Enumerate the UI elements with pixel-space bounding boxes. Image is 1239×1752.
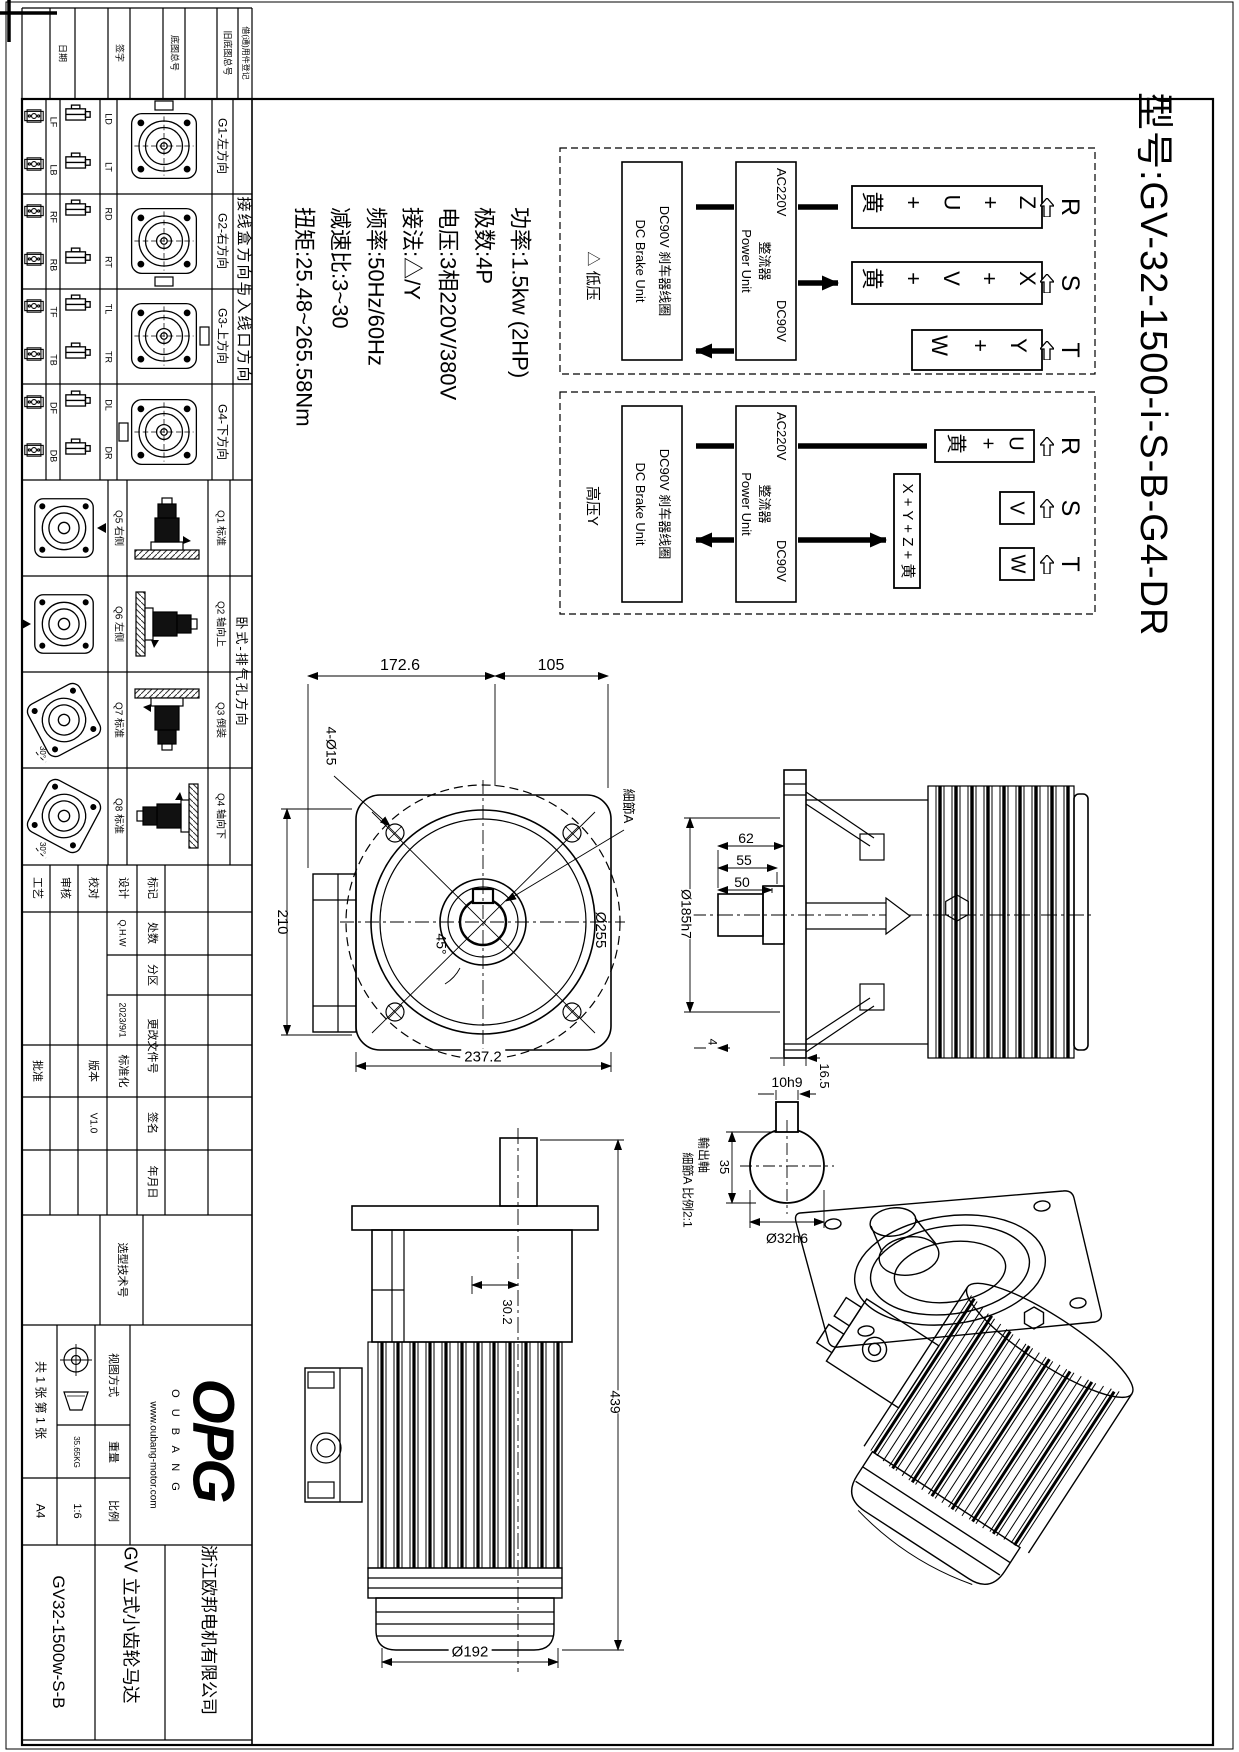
tb-rev-ymd: 年月日 bbox=[145, 1166, 157, 1199]
dim-55: 55 bbox=[736, 852, 752, 868]
q4-label: Q4 轴向下 bbox=[214, 793, 225, 839]
power-unit-cn-2: 整流器 bbox=[757, 484, 771, 523]
g1-a2: LB bbox=[48, 164, 57, 175]
vertical-view bbox=[305, 1128, 598, 1672]
g4-a1: DF bbox=[48, 402, 57, 414]
q3-label: Q3 倒装 bbox=[214, 702, 225, 738]
tb-rev-count: 处数 bbox=[145, 922, 157, 944]
tb-scale-label: 比例 bbox=[106, 1500, 118, 1522]
g2-a1: RF bbox=[48, 211, 57, 223]
g2-pos: G2-右方向 bbox=[216, 213, 229, 269]
g1-b1: LD bbox=[103, 113, 112, 125]
dim-35: 35 bbox=[717, 1160, 731, 1174]
tb-selection: 选型技术号 bbox=[115, 1243, 127, 1298]
g3-b1: TL bbox=[103, 304, 112, 315]
input-high-t: T bbox=[1057, 556, 1083, 571]
spec-poles: 极数:4P bbox=[472, 207, 495, 284]
q7-angle: 30° bbox=[38, 746, 46, 758]
q5-label: Q5 右侧 bbox=[112, 510, 123, 546]
g2-a2: RB bbox=[48, 259, 57, 272]
q7-label: Q7 标准 bbox=[112, 702, 123, 738]
tb-size: A4 bbox=[34, 1504, 47, 1519]
tb-rev-sign: 签名 bbox=[145, 1112, 157, 1134]
shaft-detail-view bbox=[726, 1090, 834, 1228]
margin-field-master: 底图总号 bbox=[169, 35, 178, 71]
high-voltage-label: 高压Y bbox=[584, 486, 600, 526]
side-view bbox=[690, 770, 1092, 1058]
input-high-s: S bbox=[1057, 500, 1083, 517]
brake-unit-cn: DC90V 刹车器线圈 bbox=[657, 206, 671, 317]
power-dc-label-2: DC90V bbox=[774, 540, 788, 582]
tb-rev-mark: 标记 bbox=[145, 877, 157, 899]
margin-field-date: 日期 bbox=[57, 44, 66, 62]
g2-b2: RT bbox=[103, 256, 112, 268]
dim-210: 210 bbox=[274, 909, 290, 934]
dim-16-5: 16.5 bbox=[817, 1063, 831, 1088]
spec-frequency: 频率:50Hz/60Hz bbox=[364, 207, 387, 366]
g4-a2: DB bbox=[48, 450, 57, 463]
dim-439: 439 bbox=[608, 1390, 623, 1413]
tb-weight: 35.65KG bbox=[72, 1436, 80, 1468]
exhaust-table-icons bbox=[22, 498, 199, 858]
terminal-high-3: W bbox=[1000, 548, 1034, 580]
g3-b2: TR bbox=[103, 351, 112, 363]
q2-label: Q2 轴向上 bbox=[214, 601, 225, 647]
spec-connection: 接法:△/Y bbox=[400, 207, 423, 300]
dim-10h9: 10h9 bbox=[771, 1074, 802, 1090]
company-name: 浙江欧邦电机有限公司 bbox=[199, 1545, 217, 1715]
tb-designer: Q.H.W bbox=[117, 920, 126, 947]
tb-version-label: 版本 bbox=[86, 1060, 98, 1082]
terminal-high-2: V bbox=[1000, 492, 1034, 524]
flange-view bbox=[313, 780, 625, 1064]
shaft-detail-label: 輸出軸 bbox=[697, 1137, 710, 1173]
tb-craft: 工艺 bbox=[30, 877, 42, 899]
g4-b1: DL bbox=[103, 399, 112, 411]
dim-105: 105 bbox=[538, 657, 565, 675]
exhaust-table-title: 卧式-排气孔方向 bbox=[234, 616, 248, 727]
q1-label: Q1 标准 bbox=[214, 510, 225, 546]
power-dc-label: DC90V bbox=[774, 300, 788, 342]
company-url: www.oubang-motor.com bbox=[147, 1401, 158, 1508]
product-name: GV 立式小齿轮马达 bbox=[121, 1546, 140, 1703]
q8-label: Q8 标准 bbox=[112, 798, 123, 834]
trim-mark bbox=[0, 0, 57, 42]
terminal-high-link: X + Y + Z + 黄 bbox=[899, 484, 915, 579]
detail-ref-label: 細節A bbox=[621, 789, 635, 824]
dim-d185h7: Ø185h7 bbox=[679, 889, 694, 939]
margin-field-borrow: 借(通)用件登记 bbox=[241, 26, 249, 79]
tb-check: 校对 bbox=[86, 877, 98, 899]
dim-4: 4 bbox=[706, 1039, 719, 1046]
dim-d32h6: Ø32h6 bbox=[766, 1230, 808, 1246]
brake-unit-en: DC Brake Unit bbox=[633, 219, 647, 302]
margin-field-sign: 签字 bbox=[114, 44, 123, 62]
drawing-sheet: 型号:GV-32-1500-i-S-B-G4-DR 功率:1.5kw (2HP)… bbox=[0, 0, 1239, 1752]
part-number: GV32-1500w-S-B bbox=[49, 1575, 67, 1708]
g4-b2: DR bbox=[103, 447, 112, 460]
g4-pos: G4-下方向 bbox=[216, 404, 229, 460]
tb-sheets: 共 1 张 第 1 张 bbox=[34, 1361, 47, 1439]
dim-30-2: 30.2 bbox=[500, 1299, 514, 1324]
g3-a1: TF bbox=[48, 307, 57, 318]
dim-62: 62 bbox=[738, 830, 754, 846]
g3-a2: TB bbox=[48, 354, 57, 366]
model-title: 型号:GV-32-1500-i-S-B-G4-DR bbox=[1132, 92, 1172, 636]
brake-unit-en-2: DC Brake Unit bbox=[633, 462, 647, 545]
tb-version: V1.0 bbox=[87, 1113, 98, 1134]
power-unit-cn: 整流器 bbox=[757, 241, 771, 280]
isometric-view bbox=[748, 1191, 1145, 1608]
dim-4xd15: 4-Ø15 bbox=[324, 727, 339, 766]
spec-voltage: 电压:3相220V/380V bbox=[436, 207, 459, 400]
tb-approve: 批准 bbox=[30, 1060, 42, 1082]
tb-audit: 审核 bbox=[58, 877, 70, 899]
tb-rev-doc: 更改文件号 bbox=[145, 1019, 157, 1074]
input-low-r: R bbox=[1057, 198, 1083, 216]
g1-b2: LT bbox=[103, 162, 112, 172]
spec-ratio: 减速比:3~30 bbox=[328, 207, 351, 329]
q8-angle: 30° bbox=[38, 842, 46, 854]
dim-45deg: 45° bbox=[434, 933, 449, 954]
tb-rev-zone: 分区 bbox=[145, 964, 157, 986]
brake-unit-cn-2: DC90V 刹车器线圈 bbox=[657, 449, 671, 560]
margin-field-old-master: 旧底图总号 bbox=[222, 30, 231, 75]
terminal-low-1: 黄 + U + Z bbox=[852, 186, 1042, 228]
projection-symbol-icon bbox=[60, 1344, 92, 1410]
input-high-r: R bbox=[1057, 437, 1083, 455]
terminal-low-2: 黄 + V + X bbox=[852, 262, 1042, 304]
dim-172-6: 172.6 bbox=[380, 657, 420, 675]
low-voltage-label: △ 低压 bbox=[584, 251, 600, 300]
tb-weight-label: 重量 bbox=[106, 1441, 118, 1463]
tb-scale: 1:6 bbox=[70, 1503, 82, 1518]
dim-d255: Ø255 bbox=[592, 912, 608, 949]
tb-design: 设计 bbox=[116, 877, 128, 899]
g1-a1: LF bbox=[48, 117, 57, 128]
company-logo: OPG bbox=[182, 1379, 243, 1502]
q6-label: Q6 左侧 bbox=[112, 606, 123, 642]
power-unit-en: Power Unit bbox=[739, 229, 753, 293]
junction-table-title: 接线盒方向与入线口方向 bbox=[235, 196, 251, 383]
dim-50: 50 bbox=[734, 874, 750, 890]
power-unit-en-2: Power Unit bbox=[739, 472, 753, 536]
tb-standardize: 标准化 bbox=[116, 1055, 128, 1088]
input-low-t: T bbox=[1057, 342, 1083, 357]
g3-pos: G3-上方向 bbox=[216, 308, 229, 364]
terminal-high-1: 黄 + U bbox=[935, 430, 1034, 462]
g1-pos: G1-左方向 bbox=[216, 118, 229, 174]
g2-b1: RD bbox=[103, 208, 112, 221]
logo-letters: O U B A N G bbox=[168, 1389, 180, 1495]
terminal-low-3: W + Y bbox=[912, 330, 1042, 370]
shaft-detail-scale: 細節A 比例2:1 bbox=[681, 1152, 694, 1227]
dim-237-2: 237.2 bbox=[461, 1049, 505, 1066]
spec-torque: 扭矩:25.48~265.58Nm bbox=[292, 207, 315, 427]
input-low-s: S bbox=[1057, 275, 1083, 292]
tb-date: 2023/9/1 bbox=[117, 1002, 126, 1037]
dim-d192: Ø192 bbox=[449, 1644, 492, 1661]
power-ac-label-2: AC220V bbox=[774, 412, 788, 460]
power-ac-label: AC220V bbox=[774, 168, 788, 216]
tb-view-label: 视图方式 bbox=[106, 1353, 118, 1397]
spec-power: 功率:1.5kw (2HP) bbox=[508, 207, 531, 378]
